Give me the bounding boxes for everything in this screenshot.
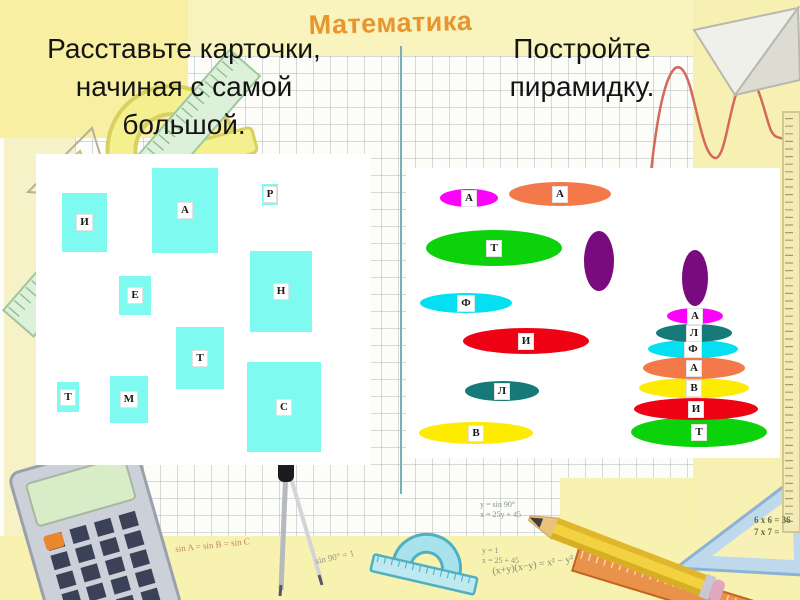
piece-letter-label: Л <box>687 326 701 341</box>
pyramid-ring-В-3[interactable]: В <box>639 378 749 398</box>
pyramid-ring-Л-6[interactable]: Л <box>656 324 732 342</box>
instruction-right-line1: Постройте <box>462 30 702 68</box>
loose-piece-А-1[interactable]: А <box>509 182 611 206</box>
card-letter-label: Н <box>274 284 289 299</box>
formula-system1-line2: x = 25y + 45 <box>480 510 521 520</box>
pyramid-ring-Т-1[interactable]: Т <box>631 417 767 447</box>
card-letter-label: А <box>178 203 192 218</box>
piece-letter-label: А <box>462 191 476 206</box>
instruction-left: Расставьте карточки, начиная с самой бол… <box>8 30 360 144</box>
card-letter-label: М <box>121 392 137 407</box>
slide: Математика Расставьте карточки, начиная … <box>0 0 800 600</box>
pyramid-ring-И-2[interactable]: И <box>634 398 758 420</box>
pyramid-panel: ААТФИЛВТИВАФЛА <box>406 168 780 458</box>
formula-mult-line1: 6 x 6 = 36 <box>754 514 791 526</box>
card-letter-label: Т <box>61 390 74 405</box>
letter-card-И-0[interactable]: И <box>62 193 107 252</box>
loose-piece-purple-3[interactable] <box>584 231 614 291</box>
piece-letter-label: И <box>689 402 704 417</box>
letter-card-А-1[interactable]: А <box>152 168 218 253</box>
loose-piece-Т-2[interactable]: Т <box>426 230 562 266</box>
piece-letter-label: А <box>553 187 567 202</box>
letter-card-М-7[interactable]: М <box>110 376 148 423</box>
piece-letter-label: В <box>687 381 700 396</box>
piece-letter-label: Т <box>487 241 500 256</box>
cards-panel: ИАРЕНТТМС <box>36 154 371 465</box>
formula-system1: y = sin 90° x = 25y + 45 <box>480 500 521 520</box>
loose-piece-Ф-4[interactable]: Ф <box>420 293 512 313</box>
instruction-right: Постройте пирамидку. <box>462 30 702 106</box>
instruction-left-line2: начиная с самой <box>8 68 360 106</box>
card-letter-label: Е <box>128 288 141 303</box>
loose-piece-А-0[interactable]: А <box>440 189 498 207</box>
pyramid-ring-purple-0[interactable] <box>682 250 708 306</box>
pyramid-ring-Ф-5[interactable]: Ф <box>648 340 738 358</box>
card-letter-label: С <box>277 400 291 415</box>
letter-card-Т-5[interactable]: Т <box>176 327 224 389</box>
instruction-left-line1: Расставьте карточки, <box>8 30 360 68</box>
pyramid-ring-А-7[interactable]: А <box>667 308 723 324</box>
instruction-right-line2: пирамидку. <box>462 68 702 106</box>
card-letter-label: Р <box>264 187 277 202</box>
piece-letter-label: Ф <box>458 296 473 311</box>
loose-piece-Л-6[interactable]: Л <box>465 381 539 401</box>
instruction-left-line3: большой. <box>8 106 360 144</box>
letter-card-Е-3[interactable]: Е <box>119 276 151 315</box>
formula-mult-line2: 7 x 7 = <box>754 526 791 538</box>
loose-piece-И-5[interactable]: И <box>463 328 589 354</box>
card-letter-label: Т <box>193 351 206 366</box>
piece-letter-label: А <box>687 361 701 376</box>
piece-letter-label: Т <box>692 425 705 440</box>
slide-divider-line <box>400 46 402 494</box>
piece-letter-label: В <box>469 426 482 441</box>
card-letter-label: И <box>77 215 92 230</box>
piece-letter-label: И <box>519 334 534 349</box>
letter-card-Р-2[interactable]: Р <box>262 184 278 205</box>
piece-letter-label: А <box>688 309 702 324</box>
letter-card-С-8[interactable]: С <box>247 362 321 452</box>
loose-piece-В-7[interactable]: В <box>419 422 533 444</box>
formula-system2-line1: y = 1 <box>482 546 519 556</box>
pyramid-ring-А-4[interactable]: А <box>643 357 745 379</box>
bottom-band-background-2 <box>560 478 695 558</box>
piece-letter-label: Л <box>495 384 509 399</box>
formula-multiplication: 6 x 6 = 36 7 x 7 = <box>754 514 791 538</box>
letter-card-Н-4[interactable]: Н <box>250 251 312 332</box>
piece-letter-label: Ф <box>685 342 700 357</box>
letter-card-Т-6[interactable]: Т <box>57 382 79 412</box>
formula-system1-line1: y = sin 90° <box>480 500 521 510</box>
